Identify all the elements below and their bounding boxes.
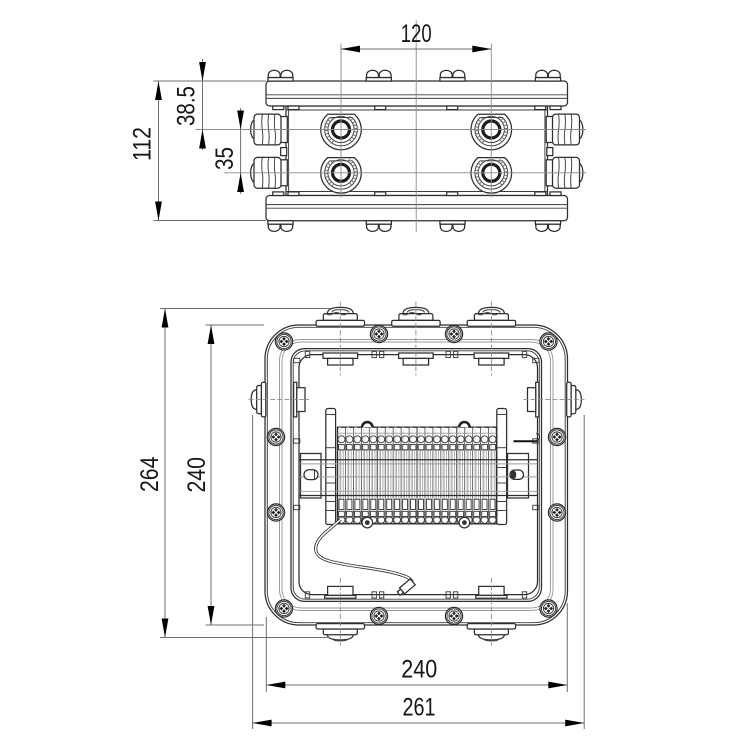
svg-text:240: 240 [183, 457, 211, 493]
svg-text:38.5: 38.5 [173, 86, 201, 126]
svg-text:35: 35 [211, 147, 239, 170]
svg-text:240: 240 [401, 656, 437, 684]
svg-text:112: 112 [129, 127, 157, 161]
svg-text:261: 261 [403, 694, 436, 722]
svg-text:264: 264 [136, 456, 164, 492]
svg-text:120: 120 [401, 20, 432, 48]
